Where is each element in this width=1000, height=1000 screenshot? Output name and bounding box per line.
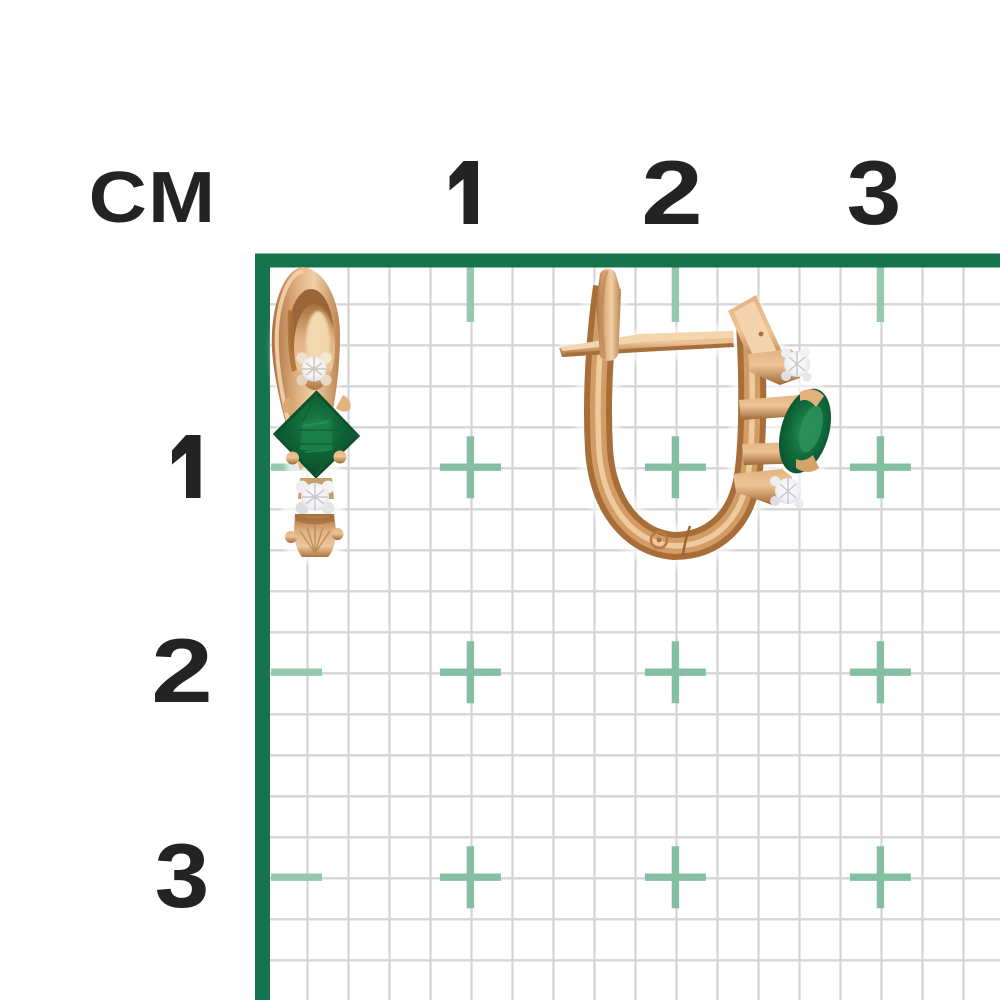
svg-text:2: 2 bbox=[151, 620, 213, 722]
svg-text:3: 3 bbox=[155, 825, 210, 927]
svg-text:2: 2 bbox=[641, 142, 703, 244]
svg-text:СМ: СМ bbox=[89, 158, 218, 238]
svg-text:3: 3 bbox=[847, 142, 902, 244]
